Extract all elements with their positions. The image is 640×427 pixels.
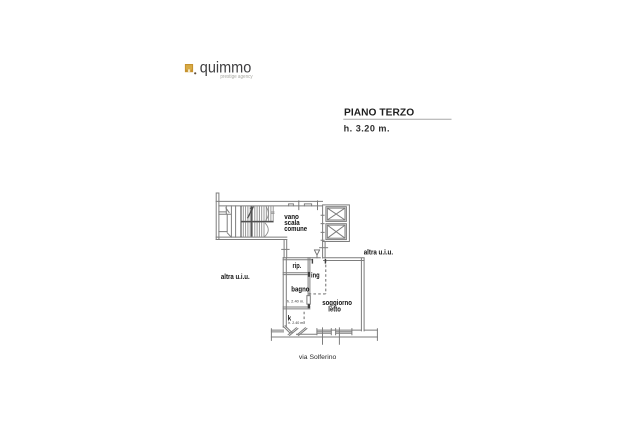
- svg-text:PIANO TERZO: PIANO TERZO: [344, 108, 414, 119]
- svg-text:altra u.i.u.: altra u.i.u.: [364, 248, 393, 257]
- svg-text:ing: ing: [311, 270, 320, 279]
- svg-text:comune: comune: [284, 226, 307, 233]
- svg-text:letto: letto: [328, 305, 341, 314]
- svg-text:h. 2.40 m.: h. 2.40 m.: [288, 321, 304, 325]
- svg-text:rip.: rip.: [293, 261, 302, 270]
- svg-text:h. 2.40 m.: h. 2.40 m.: [287, 299, 305, 303]
- svg-text:altra u.i.u.: altra u.i.u.: [221, 272, 250, 281]
- svg-text:h. 3.20 m.: h. 3.20 m.: [344, 124, 390, 134]
- svg-text:bagno: bagno: [291, 284, 310, 293]
- svg-text:prestige agency: prestige agency: [220, 74, 252, 80]
- svg-text:via Solferino: via Solferino: [299, 354, 337, 361]
